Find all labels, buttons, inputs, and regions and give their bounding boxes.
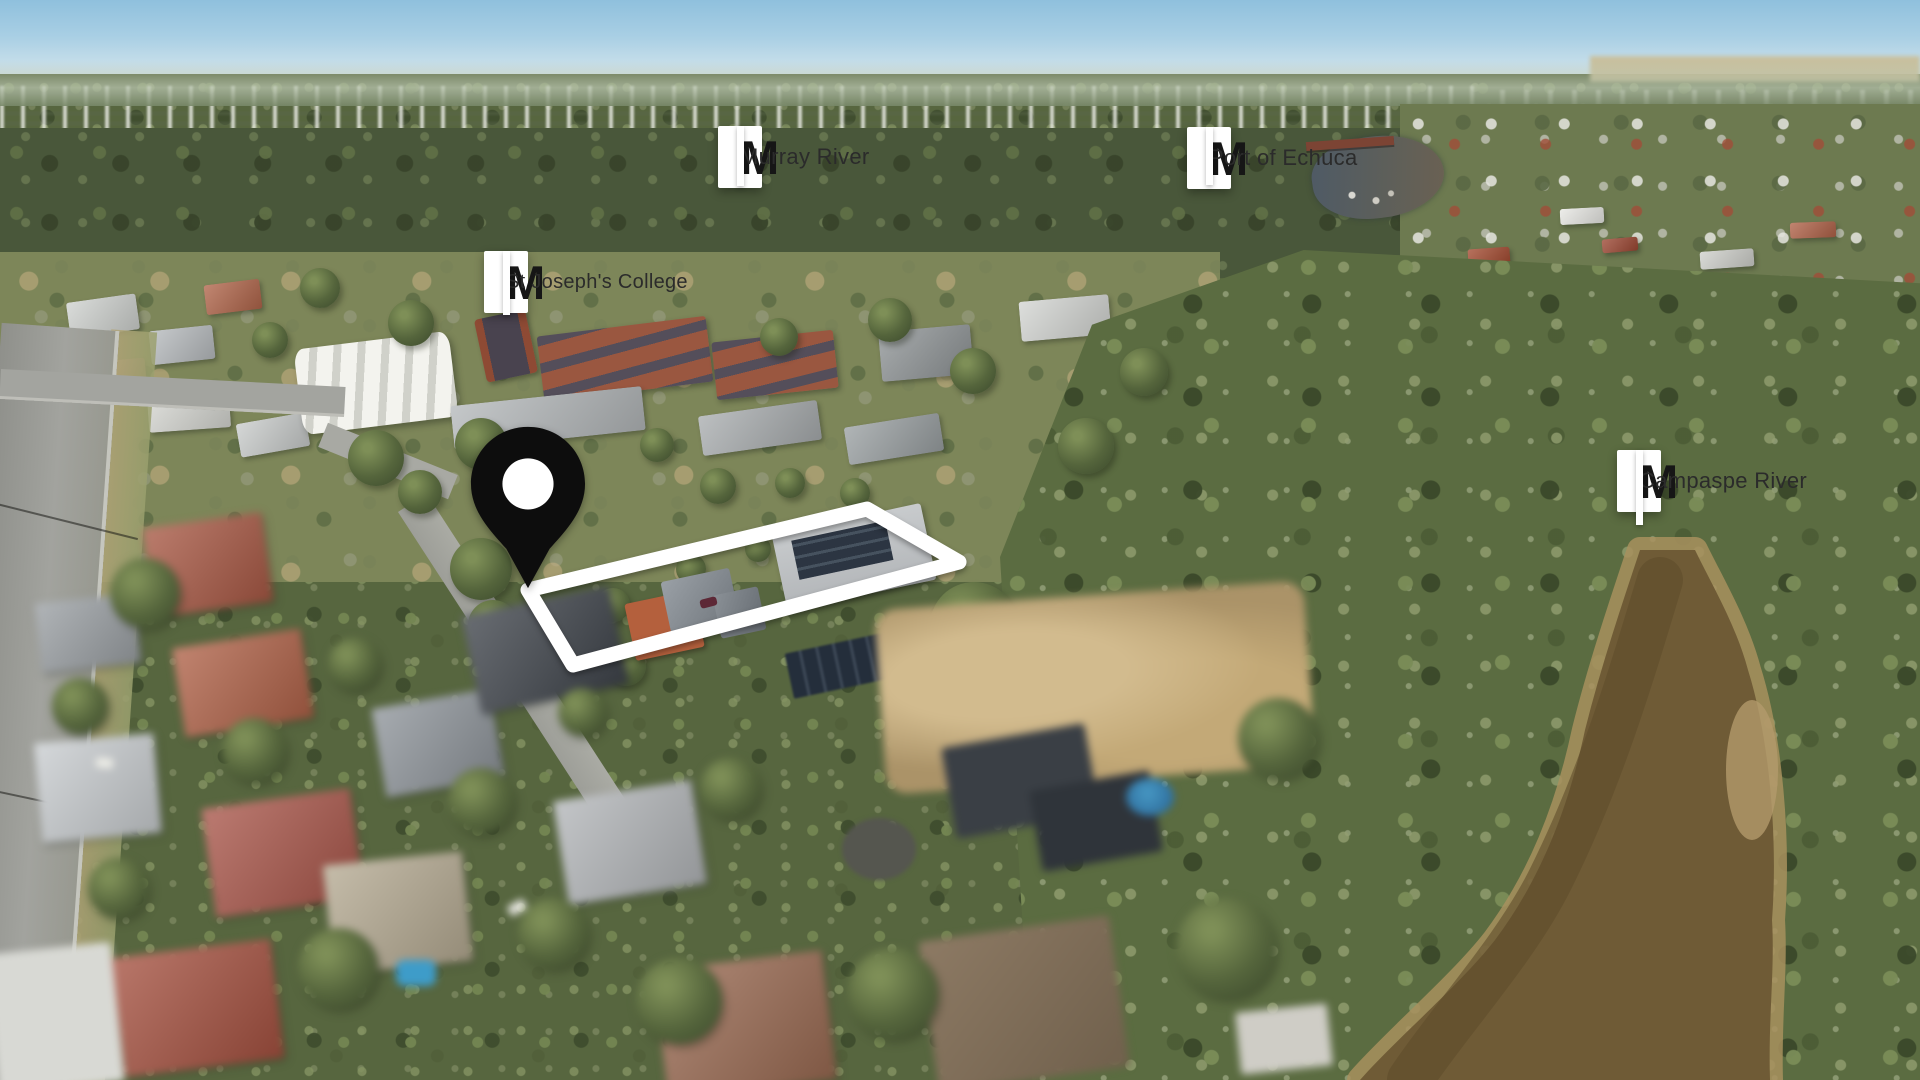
swimming-pool [396, 960, 436, 986]
label-text: Campaspe River [1639, 468, 1807, 494]
tree [558, 688, 606, 736]
tree [775, 468, 805, 498]
tree [88, 858, 148, 918]
pointer-line [737, 126, 744, 186]
house-roof [34, 733, 162, 843]
building-roof [0, 942, 125, 1080]
pointer-line [1636, 450, 1643, 525]
tree [300, 268, 340, 308]
label-text: St Joseph's College [506, 271, 688, 294]
town-roof [1790, 221, 1837, 239]
tree [252, 322, 288, 358]
location-pin [469, 426, 587, 589]
tree [448, 768, 514, 834]
parked-car [96, 757, 114, 769]
tree [868, 298, 912, 342]
tree [848, 948, 938, 1038]
label-text: Port of Echuca [1209, 145, 1358, 171]
tree [1176, 898, 1276, 998]
tree [298, 928, 378, 1008]
house-roof [148, 325, 215, 366]
tree [328, 638, 380, 690]
tree [388, 300, 434, 346]
trampoline [1126, 778, 1174, 816]
town-roof [1699, 248, 1754, 270]
aerial-property-photo: M St Joseph's College M Murray River M P… [0, 0, 1920, 1080]
tree [222, 718, 286, 782]
pointer-line [1206, 127, 1213, 185]
tree [52, 678, 108, 734]
house-roof [111, 939, 284, 1078]
house-roof [553, 780, 708, 906]
town-roof [1560, 207, 1605, 225]
tree [1238, 698, 1318, 778]
house-roof [461, 585, 629, 714]
horizon-haze [0, 60, 1920, 106]
house-roof [918, 915, 1129, 1080]
tree [950, 348, 996, 394]
tree [840, 478, 870, 508]
tree [348, 430, 404, 486]
tree [700, 758, 760, 818]
tree [518, 898, 588, 968]
tree [1120, 348, 1168, 396]
pointer-line [503, 251, 510, 315]
label-text: Murray River [740, 144, 870, 170]
tree [700, 468, 736, 504]
foreground-suburb [0, 540, 1400, 1080]
tree [636, 958, 722, 1044]
tree [398, 470, 442, 514]
tree [110, 558, 180, 628]
moored-boats [1340, 188, 1400, 206]
tree [760, 318, 798, 356]
shed-roof [1235, 1003, 1333, 1074]
tree [1058, 418, 1114, 474]
tree [640, 428, 674, 462]
